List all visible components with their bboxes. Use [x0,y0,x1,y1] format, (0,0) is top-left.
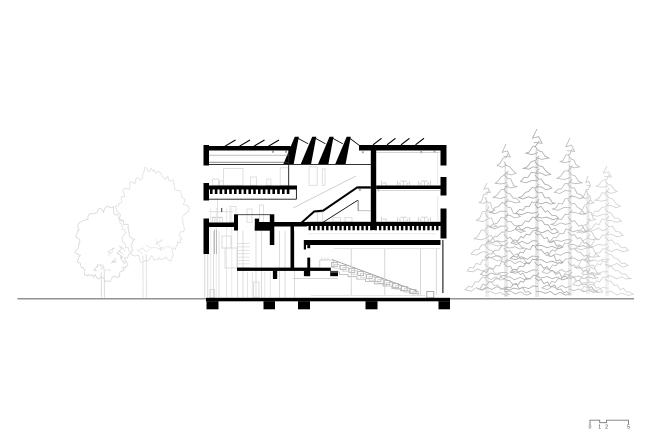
svg-text:0: 0 [589,425,592,431]
svg-text:1: 1 [598,425,601,431]
svg-text:5: 5 [627,425,630,431]
svg-text:2: 2 [605,425,608,431]
